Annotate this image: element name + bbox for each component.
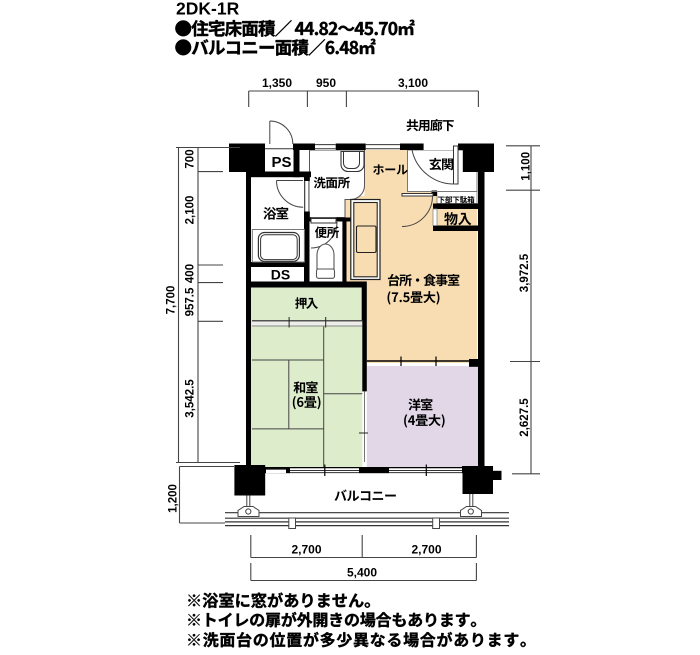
svg-text:1,350: 1,350	[262, 76, 292, 90]
svg-text:DS: DS	[271, 267, 290, 283]
svg-text:950: 950	[316, 76, 336, 90]
svg-text:PS: PS	[271, 154, 291, 171]
svg-text:5,400: 5,400	[347, 566, 377, 580]
svg-text:1,200: 1,200	[168, 484, 180, 513]
svg-text:2,700: 2,700	[291, 543, 321, 557]
svg-text:2,700: 2,700	[411, 543, 441, 557]
svg-text:2,627.5: 2,627.5	[519, 398, 531, 437]
svg-text:3,542.5: 3,542.5	[185, 379, 197, 418]
svg-text:1,100: 1,100	[521, 152, 533, 181]
svg-text:2DK-1R: 2DK-1R	[176, 0, 240, 19]
svg-text:700: 700	[185, 149, 197, 168]
svg-text:7,700: 7,700	[166, 286, 178, 315]
svg-text:400: 400	[185, 264, 197, 283]
svg-text:3,100: 3,100	[398, 76, 428, 90]
svg-text:2,100: 2,100	[185, 196, 197, 225]
svg-text:957.5: 957.5	[185, 287, 197, 316]
svg-text:3,972.5: 3,972.5	[519, 253, 531, 292]
